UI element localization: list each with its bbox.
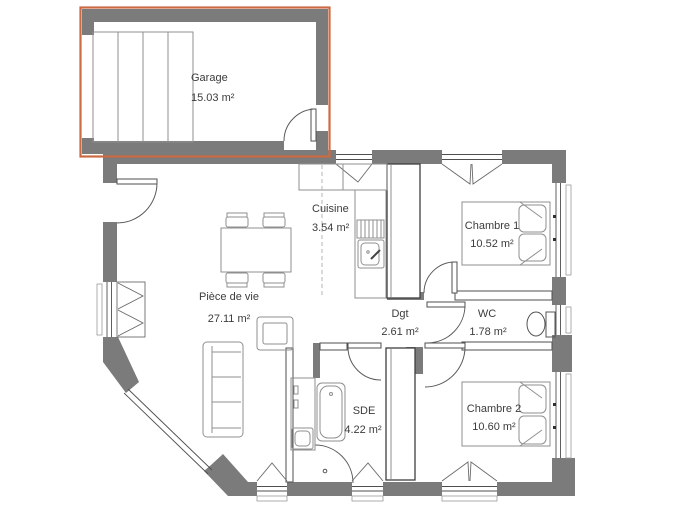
garage-sectional-door bbox=[93, 32, 193, 142]
window-sejour-west bbox=[97, 282, 145, 337]
room-area: 10.60 m² bbox=[472, 421, 516, 433]
room-name: WC bbox=[478, 308, 496, 320]
window-wc-east bbox=[556, 305, 571, 335]
bed-chambre1 bbox=[462, 202, 550, 265]
toilet-icon bbox=[527, 312, 555, 337]
room-name: Chambre 2 bbox=[467, 403, 521, 415]
window-chambre1-north bbox=[442, 155, 502, 185]
room-label-dgt: Dgt 2.61 m² bbox=[381, 308, 419, 338]
room-name: Garage bbox=[191, 72, 228, 84]
bay-window bbox=[124, 389, 212, 474]
room-area: 10.52 m² bbox=[470, 238, 514, 250]
closet-hall-column bbox=[386, 348, 415, 480]
room-name: Chambre 1 bbox=[465, 220, 519, 232]
window-chambre1-east bbox=[553, 183, 571, 277]
floor-plan-drawing: Garage 15.03 m² Cuisine 3.54 m² Chambre … bbox=[0, 0, 680, 510]
entry-door bbox=[117, 179, 157, 223]
window-sejour-south bbox=[257, 463, 287, 501]
room-area: 4.22 m² bbox=[344, 424, 382, 436]
floor-plan-page: Garage 15.03 m² Cuisine 3.54 m² Chambre … bbox=[0, 0, 680, 510]
room-label-garage: Garage 15.03 m² bbox=[191, 72, 235, 104]
kitchen-sink-icon bbox=[358, 240, 384, 268]
shower-screen bbox=[315, 445, 353, 483]
room-label-chambre2: Chambre 2 10.60 m² bbox=[467, 403, 521, 433]
room-label-chambre1: Chambre 1 10.52 m² bbox=[465, 220, 519, 250]
room-name: Pièce de vie bbox=[199, 291, 259, 303]
dining-table bbox=[221, 213, 291, 287]
room-area: 3.54 m² bbox=[312, 222, 350, 234]
sofa bbox=[203, 342, 243, 437]
garage-house-door bbox=[284, 109, 316, 141]
bay-wall-stub-lower bbox=[204, 454, 248, 496]
room-area: 27.11 m² bbox=[208, 313, 251, 325]
chair bbox=[263, 273, 285, 287]
window-cuisine-north bbox=[336, 155, 372, 183]
room-name: Cuisine bbox=[312, 203, 349, 215]
chair bbox=[226, 273, 248, 287]
window-chambre2-east bbox=[553, 372, 571, 458]
chair bbox=[263, 213, 285, 227]
room-label-sde: SDE 4.22 m² bbox=[344, 405, 382, 436]
wc-door bbox=[427, 302, 465, 343]
closet-kitchen-column bbox=[387, 164, 420, 298]
chambre2-door bbox=[425, 343, 465, 387]
bay-wall-stub-upper bbox=[103, 337, 139, 393]
room-label-wc: WC 1.78 m² bbox=[469, 308, 507, 338]
room-name: Dgt bbox=[391, 308, 408, 320]
chair bbox=[226, 213, 248, 227]
bathtub-icon bbox=[317, 383, 345, 441]
room-area: 2.61 m² bbox=[381, 326, 419, 338]
window-sde-south bbox=[352, 463, 383, 501]
washbasin-icon bbox=[291, 378, 315, 450]
armchair bbox=[257, 317, 293, 350]
room-area: 1.78 m² bbox=[469, 326, 507, 338]
room-area: 15.03 m² bbox=[191, 92, 235, 104]
window-chambre2-south bbox=[442, 462, 497, 501]
sde-door bbox=[348, 343, 381, 380]
room-name: SDE bbox=[353, 405, 376, 417]
chambre1-door bbox=[424, 262, 457, 293]
cooktop-icon bbox=[357, 220, 384, 238]
room-label-piece-de-vie: Pièce de vie 27.11 m² bbox=[199, 291, 259, 325]
room-label-cuisine: Cuisine 3.54 m² bbox=[312, 203, 350, 234]
